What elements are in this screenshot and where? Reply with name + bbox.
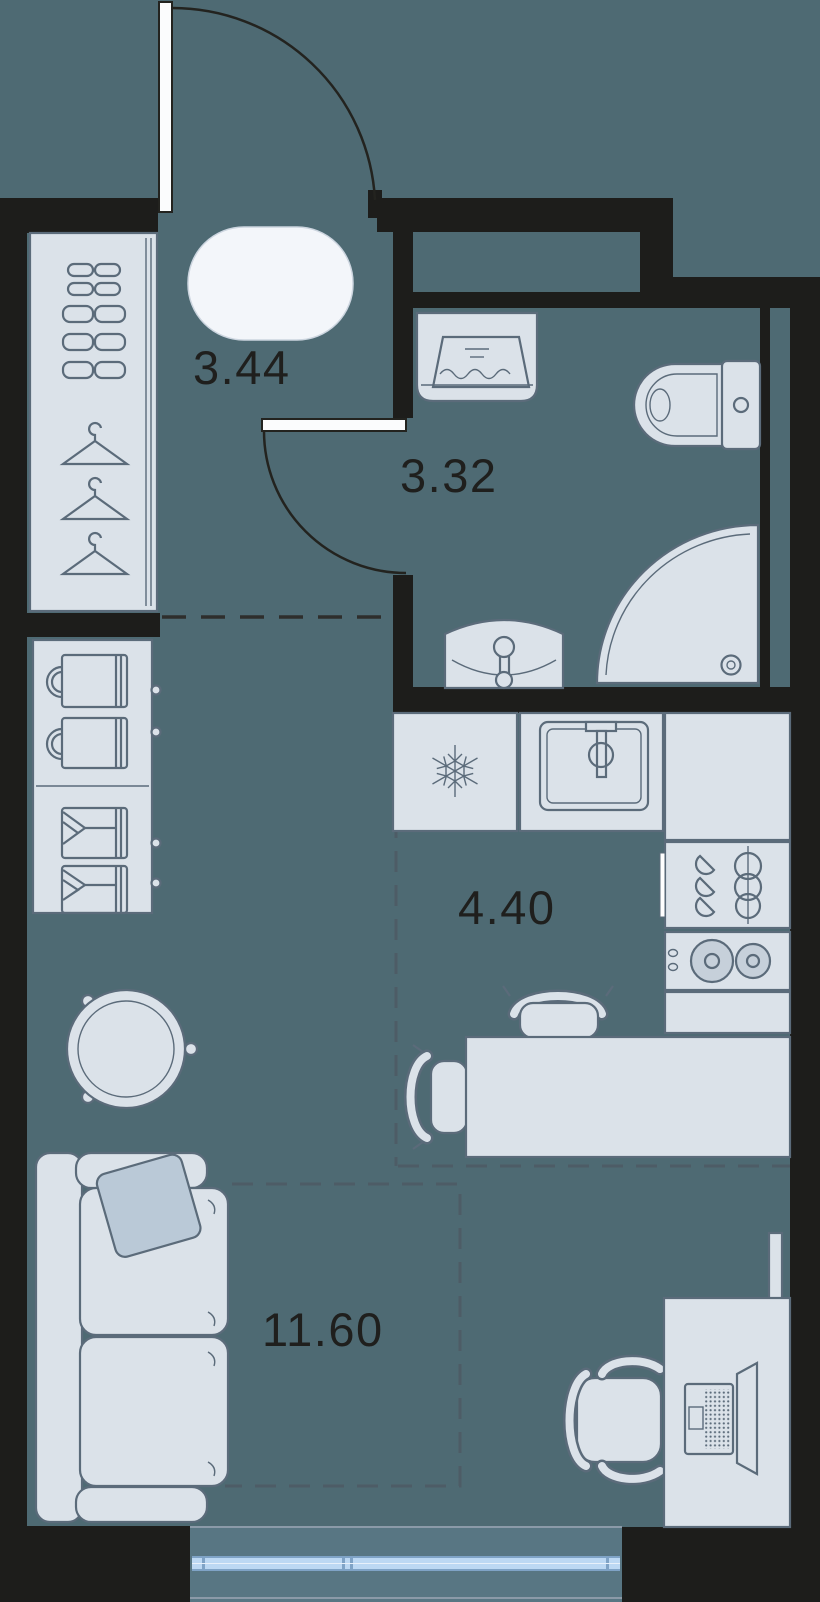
toilet-cistern bbox=[722, 361, 760, 449]
office-chair bbox=[577, 1378, 661, 1462]
toilet bbox=[634, 361, 760, 449]
washbasin bbox=[445, 620, 563, 688]
storage-cabinet bbox=[33, 640, 161, 913]
fixtures-layer bbox=[0, 0, 820, 1602]
room-label-bathroom: 3.32 bbox=[400, 452, 497, 499]
bathroom-door bbox=[262, 419, 406, 573]
wardrobe bbox=[30, 233, 157, 611]
burner-icon bbox=[736, 944, 770, 978]
entry-door-leaf bbox=[159, 2, 172, 212]
cabinet-knob bbox=[152, 728, 161, 737]
washing-machine bbox=[417, 313, 537, 401]
rug bbox=[188, 227, 353, 340]
burner-icon bbox=[691, 940, 733, 982]
dining-chair bbox=[520, 1003, 598, 1038]
dining-table bbox=[466, 1037, 790, 1157]
bathroom-door-leaf bbox=[262, 419, 406, 431]
shower bbox=[597, 525, 758, 683]
floor-plan: 3.44 3.32 4.40 11.60 bbox=[0, 0, 820, 1602]
cabinet-knob bbox=[152, 879, 161, 888]
cabinet-handle bbox=[660, 853, 665, 917]
dining-chair bbox=[431, 1061, 467, 1133]
refrigerator bbox=[393, 713, 517, 831]
kitchen-sink bbox=[520, 713, 663, 831]
round-table bbox=[67, 990, 197, 1108]
sofa bbox=[36, 1152, 228, 1522]
cabinet-knob bbox=[152, 839, 161, 848]
room-label-kitchen: 4.40 bbox=[458, 884, 555, 931]
room-label-living-room: 11.60 bbox=[262, 1306, 384, 1353]
cabinet-knob bbox=[152, 686, 161, 695]
entry-door bbox=[159, 2, 375, 212]
kitchen-counter bbox=[660, 713, 790, 1033]
room-label-hallway: 3.44 bbox=[193, 344, 290, 391]
workspace bbox=[570, 1233, 791, 1527]
faucet-icon bbox=[586, 722, 616, 731]
